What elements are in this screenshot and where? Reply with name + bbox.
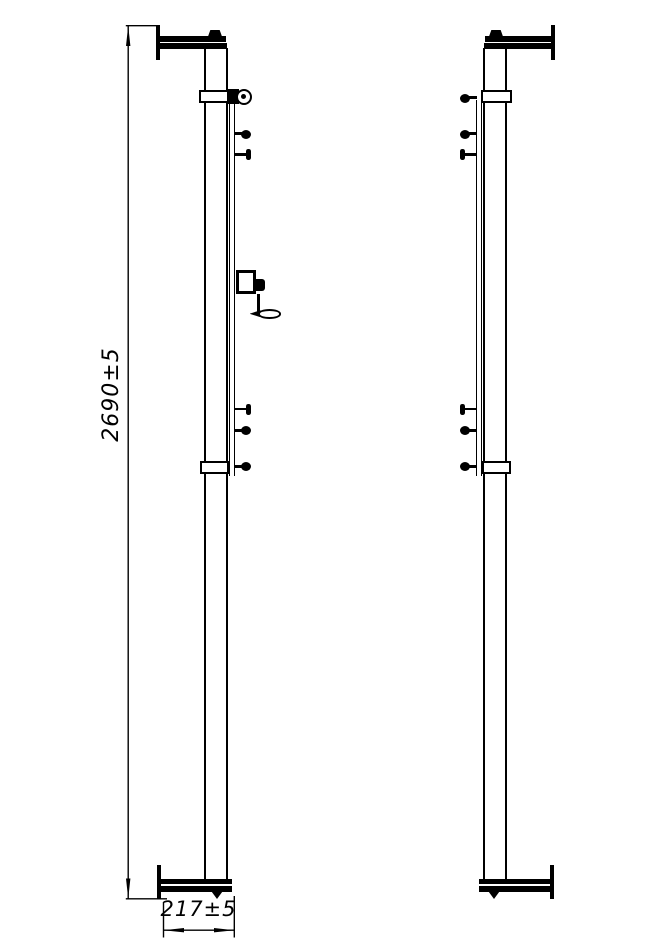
right-post-top-flange-plate-upper [485,36,555,42]
right-post-bottom-flange-plate-lower [479,886,555,892]
right-post-pin-stem-1 [465,153,478,156]
right-post-guide-rail [476,100,483,476]
right-post-upper-collar [482,90,513,103]
right-post-pin-stem-2 [465,408,478,411]
right-post-bottom-flange-wedge [489,892,500,900]
right-post-pin-head-2 [460,404,465,415]
right-post-mirror-wrapper [0,0,672,941]
right-post-lower-collar [483,461,512,474]
right-post-pin-head-1 [460,149,465,160]
right-post-hook-knob-1 [461,130,471,139]
right-post-top-flange-lug [489,30,503,37]
right-post-hook-knob-3 [461,462,471,471]
right-post-bottom-flange-plate-upper [480,879,555,884]
right-post-hook-knob-0 [461,94,471,103]
technical-drawing-canvas: 2690±5 217±5 [0,0,672,941]
right-post-hook-knob-2 [461,426,471,435]
